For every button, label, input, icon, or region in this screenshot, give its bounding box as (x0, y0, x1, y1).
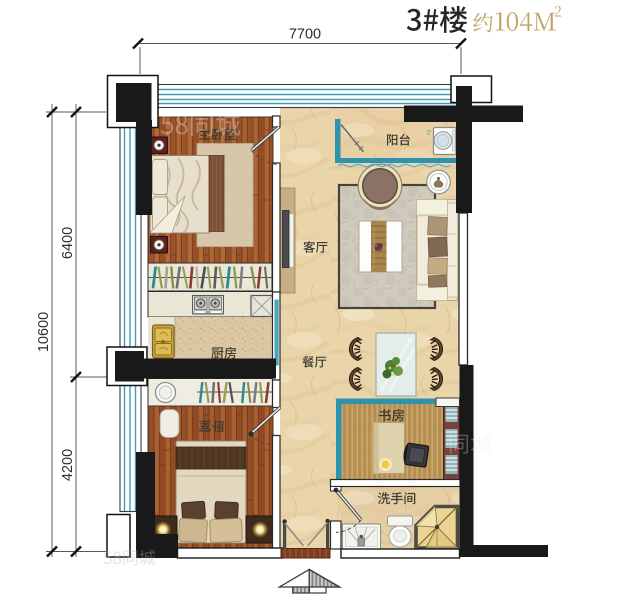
svg-text:6400: 6400 (60, 227, 76, 259)
svg-text:7700: 7700 (289, 27, 321, 43)
svg-text:10600: 10600 (36, 312, 52, 352)
svg-text:4200: 4200 (60, 449, 76, 481)
